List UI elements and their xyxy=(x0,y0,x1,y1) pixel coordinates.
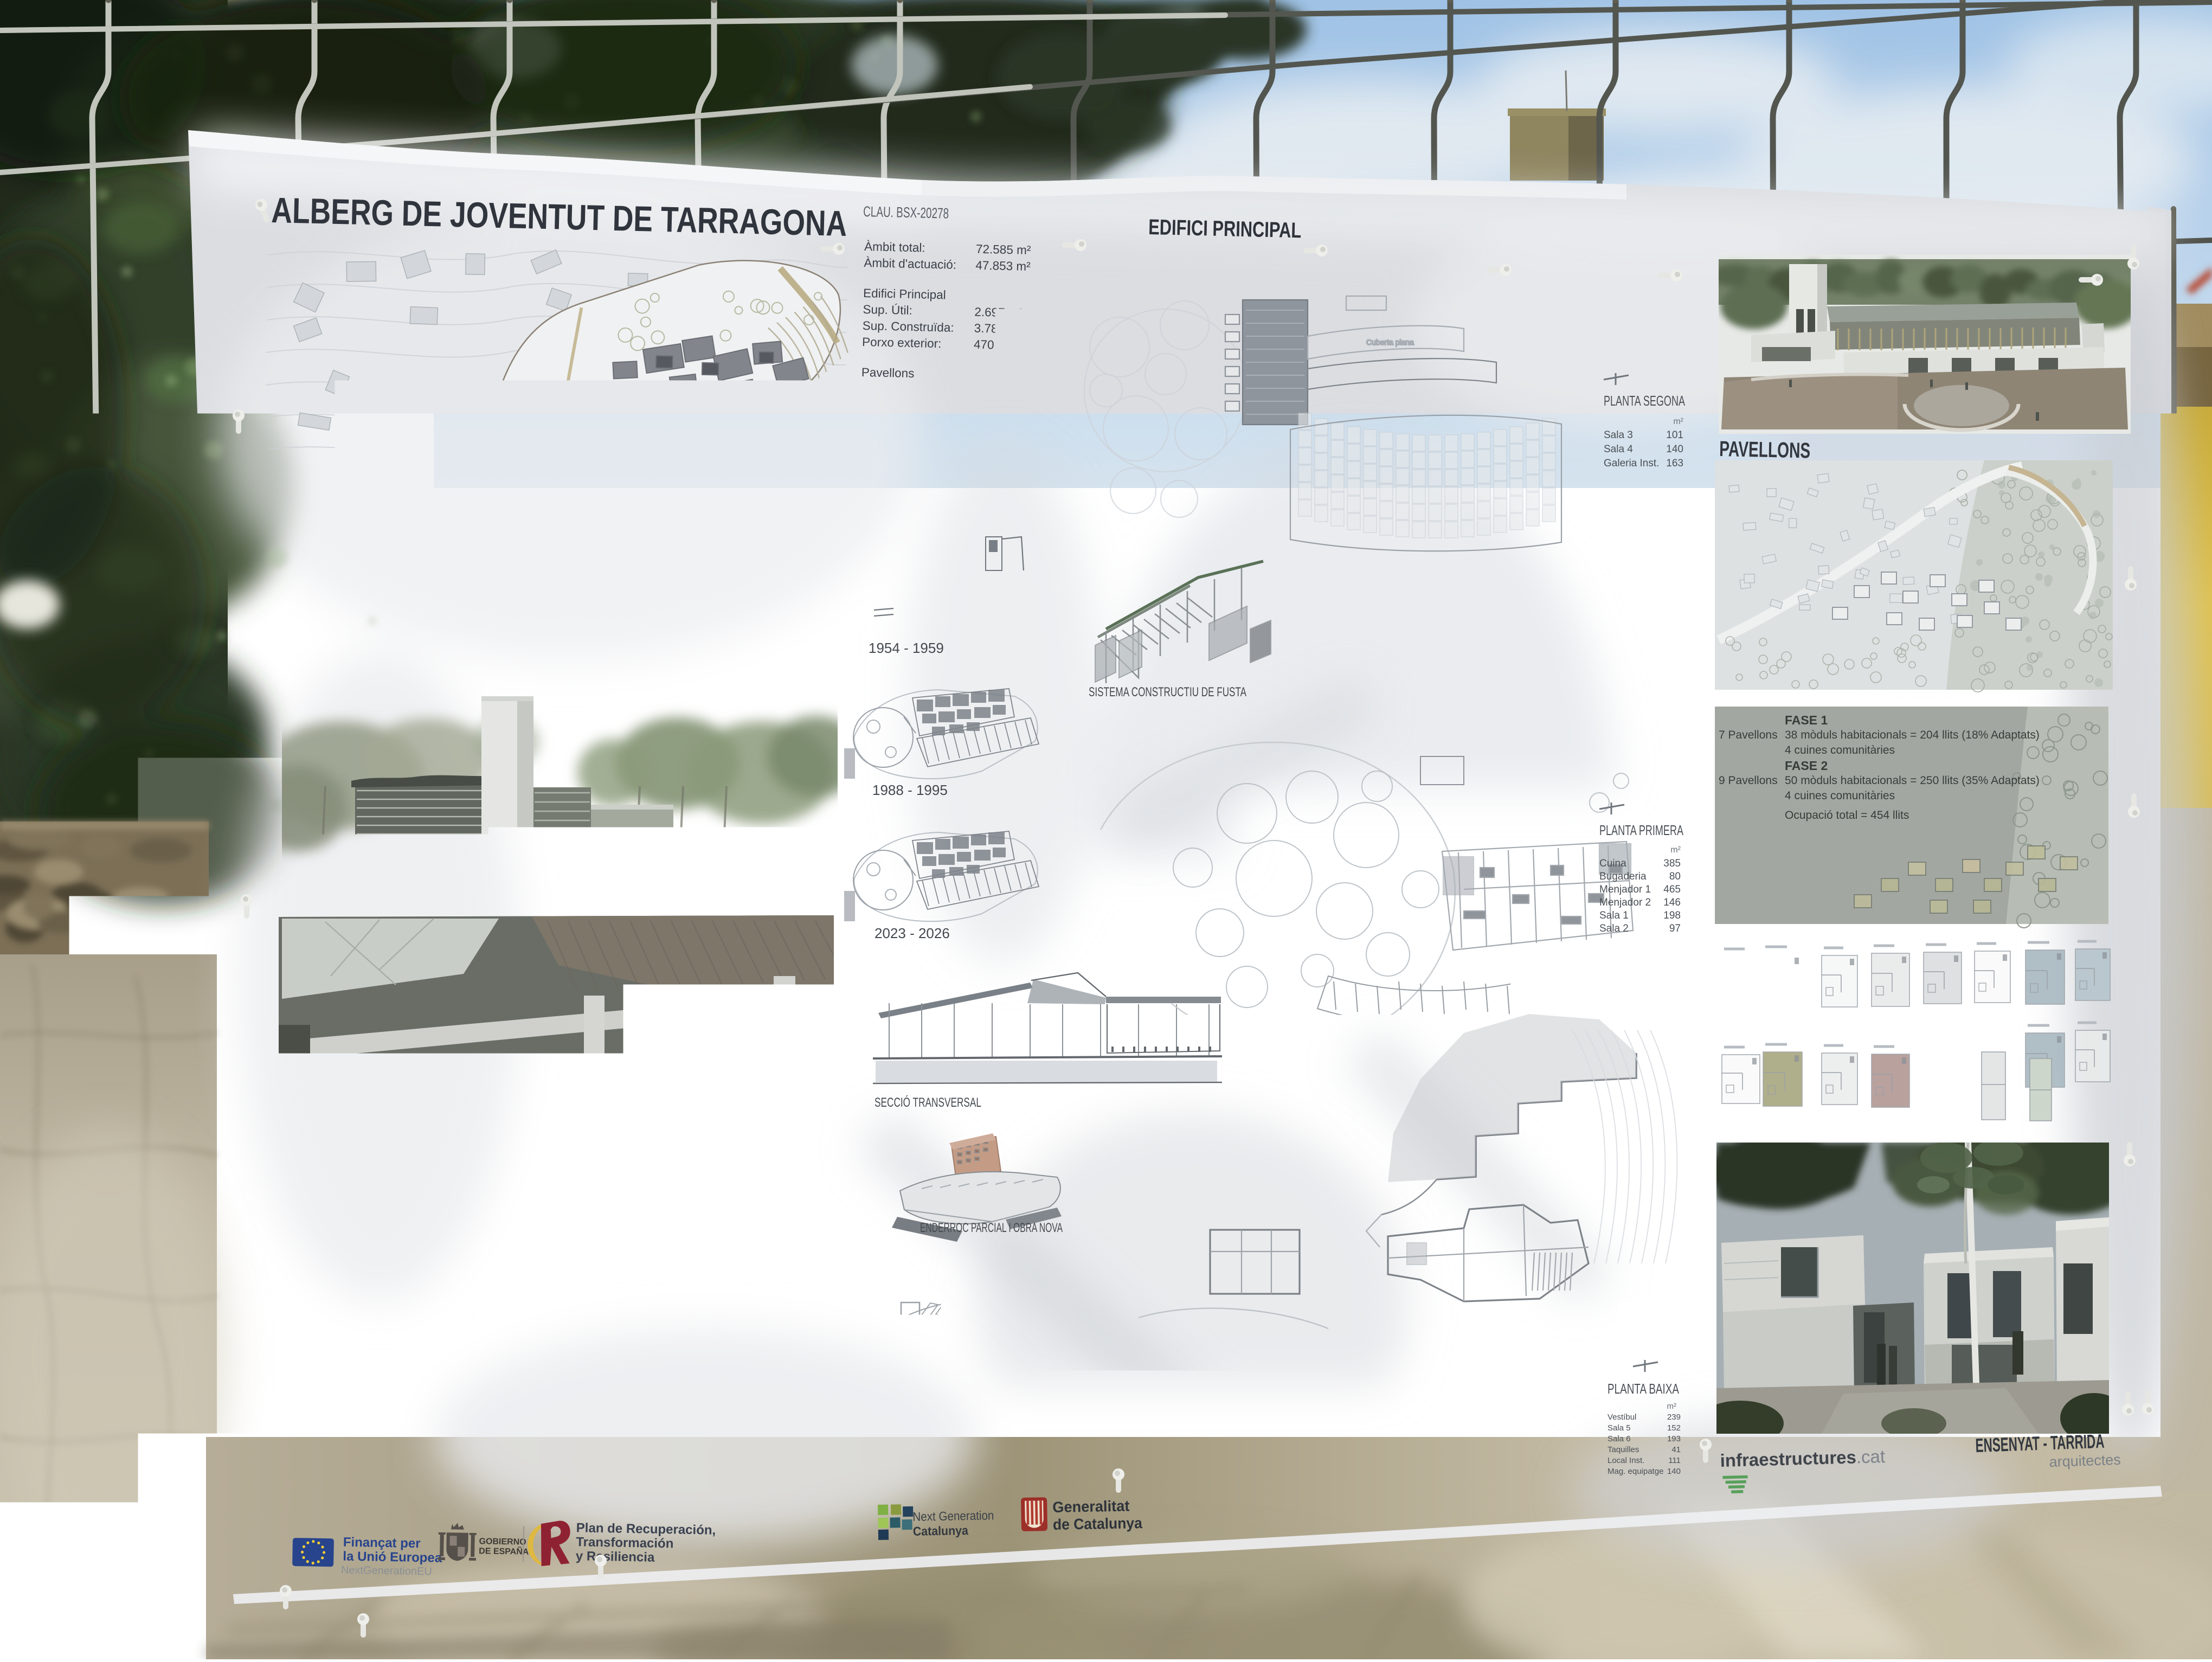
svg-text:Mag. equipatge: Mag. equipatge xyxy=(1607,1467,1663,1476)
svg-text:SECCIÓ TRANSVERSAL: SECCIÓ TRANSVERSAL xyxy=(874,1095,981,1110)
svg-text:PLANTA BAIXA: PLANTA BAIXA xyxy=(1607,1381,1679,1397)
svg-text:2.393 m²: 2.393 m² xyxy=(972,401,1021,415)
svg-text:Sala 6: Sala 6 xyxy=(1607,1434,1631,1443)
svg-text:101: 101 xyxy=(1666,429,1683,441)
svg-text:PROPOSTA FINAL EDIFICI DE SERV: PROPOSTA FINAL EDIFICI DE SERVEIS xyxy=(878,1465,1057,1479)
svg-text:4 cuines comunitàries: 4 cuines comunitàries xyxy=(1785,744,1895,756)
svg-text:ENDERROC PARCIAL I OBRA NOVA: ENDERROC PARCIAL I OBRA NOVA xyxy=(920,1221,1063,1235)
svg-text:Sala 1: Sala 1 xyxy=(1599,910,1629,921)
svg-text:2.697 m²: 2.697 m² xyxy=(974,305,1023,320)
svg-text:la Unió Europea: la Unió Europea xyxy=(343,1549,442,1565)
svg-text:Àmbit d'actuació:: Àmbit d'actuació: xyxy=(864,256,956,272)
svg-text:Edifici Principal: Edifici Principal xyxy=(863,286,946,301)
svg-text:Taquilles: Taquilles xyxy=(1607,1445,1639,1454)
svg-text:Sala 5: Sala 5 xyxy=(1607,1423,1631,1433)
svg-text:Local Inst.: Local Inst. xyxy=(1607,1456,1644,1465)
svg-text:Finançat per: Finançat per xyxy=(343,1535,421,1551)
svg-text:163: 163 xyxy=(1666,458,1683,469)
svg-text:80: 80 xyxy=(1669,871,1681,882)
svg-text:9 Pavellons: 9 Pavellons xyxy=(1719,774,1778,787)
svg-text:50 mòduls habitacionals = 250: 50 mòduls habitacionals = 250 llits (35%… xyxy=(1785,774,2040,787)
svg-text:Porxo exterior:: Porxo exterior: xyxy=(862,335,942,350)
svg-text:470 m²: 470 m² xyxy=(974,338,1012,352)
svg-text:97: 97 xyxy=(1669,923,1681,934)
svg-text:Cuina: Cuina xyxy=(1599,858,1626,869)
svg-text:4 cuines comunitàries: 4 cuines comunitàries xyxy=(1785,790,1895,802)
svg-text:44x32 m: 44x32 m xyxy=(971,464,1018,478)
svg-text:Galeria Inst.: Galeria Inst. xyxy=(1604,458,1659,469)
svg-text:PLANTA SEGONA: PLANTA SEGONA xyxy=(1604,393,1685,409)
svg-text:1954 - 1959: 1954 - 1959 xyxy=(869,640,944,656)
svg-text:arquitectes: arquitectes xyxy=(2049,1452,2121,1471)
svg-text:193: 193 xyxy=(1667,1434,1681,1443)
svg-text:Catalunya: Catalunya xyxy=(913,1523,969,1538)
svg-text:Àmbit total:: Àmbit total: xyxy=(864,240,925,255)
svg-text:EDIFICI PRINCIPAL: EDIFICI PRINCIPAL xyxy=(1148,215,1302,242)
svg-text:146: 146 xyxy=(1663,897,1681,908)
svg-text:38 mòduls habitacionals = 204: 38 mòduls habitacionals = 204 llits (18%… xyxy=(1785,729,2040,741)
svg-text:m²: m² xyxy=(1667,1402,1677,1411)
svg-text:Sala 3: Sala 3 xyxy=(1604,429,1633,441)
svg-text:m²: m² xyxy=(1670,845,1681,855)
svg-text:140: 140 xyxy=(1667,1467,1681,1476)
svg-text:CLAU. BSX-20278: CLAU. BSX-20278 xyxy=(863,203,949,222)
svg-text:Sup. Construïda:: Sup. Construïda: xyxy=(863,319,954,335)
svg-text:SISTEMA CONSTRUCTIU DE FUSTA: SISTEMA CONSTRUCTIU DE FUSTA xyxy=(1089,685,1246,700)
svg-text:Sup. Útil:: Sup. Útil: xyxy=(861,382,911,396)
svg-text:1.834 m²: 1.834 m² xyxy=(973,384,1021,399)
svg-text:Bugaderia: Bugaderia xyxy=(1599,871,1647,882)
svg-text:152: 152 xyxy=(1667,1423,1681,1433)
svg-text:7 Pavellons: 7 Pavellons xyxy=(1719,729,1778,741)
svg-text:de Catalunya: de Catalunya xyxy=(1053,1515,1143,1533)
svg-text:y Resiliencia: y Resiliencia xyxy=(576,1549,655,1565)
svg-text:PLANTA PRIMERA: PLANTA PRIMERA xyxy=(1599,822,1683,838)
svg-text:2023 - 2026: 2023 - 2026 xyxy=(874,925,950,941)
svg-text:Pistes esportives: Pistes esportives xyxy=(859,461,952,477)
svg-text:41: 41 xyxy=(1671,1445,1681,1454)
svg-text:239: 239 xyxy=(1667,1413,1681,1422)
svg-text:14.200 m²: 14.200 m² xyxy=(972,431,1027,446)
svg-text:FASE 2: FASE 2 xyxy=(1785,759,1828,773)
svg-text:Vestíbul: Vestíbul xyxy=(1607,1413,1636,1422)
svg-text:NextGenerationEU: NextGenerationEU xyxy=(341,1564,432,1578)
svg-text:Jocs infantils:: Jocs infantils: xyxy=(859,445,933,460)
svg-text:PAVELLONS: PAVELLONS xyxy=(1719,437,1811,463)
svg-text:REHABILITACIÓ DE L’ESTRUCTURA: REHABILITACIÓ DE L’ESTRUCTURA ORIGINAL xyxy=(923,1351,1093,1365)
svg-text:Generalitat: Generalitat xyxy=(1052,1498,1130,1516)
svg-text:4.600 m²: 4.600 m² xyxy=(971,447,1020,462)
svg-text:Menjador 1: Menjador 1 xyxy=(1599,884,1651,895)
svg-text:FASE 1: FASE 1 xyxy=(1785,713,1828,727)
svg-text:Sup. Útil:: Sup. Útil: xyxy=(863,303,912,317)
svg-text:385: 385 xyxy=(1663,858,1681,869)
svg-text:Next Generation: Next Generation xyxy=(912,1508,994,1524)
svg-text:Cuberta plana: Cuberta plana xyxy=(1366,338,1414,346)
svg-text:465: 465 xyxy=(1663,884,1681,895)
svg-text:60 places: 60 places xyxy=(970,510,1023,525)
svg-text:m²: m² xyxy=(1673,417,1683,426)
svg-text:3.781 m²: 3.781 m² xyxy=(974,322,1023,336)
svg-text:Sup. Construïda:: Sup. Construïda: xyxy=(860,398,952,414)
svg-text:Sala 4: Sala 4 xyxy=(1604,444,1633,455)
svg-text:47.853 m²: 47.853 m² xyxy=(975,259,1031,273)
svg-text:140: 140 xyxy=(1666,444,1683,455)
svg-text:Ocupació total = 454 llits: Ocupació total = 454 llits xyxy=(1785,809,1909,822)
svg-text:Sala 2: Sala 2 xyxy=(1599,923,1629,934)
svg-text:GOBIERNO: GOBIERNO xyxy=(479,1537,526,1547)
svg-text:Menjador 2: Menjador 2 xyxy=(1599,897,1651,908)
svg-text:Aparcament: Aparcament xyxy=(858,491,925,506)
svg-text:Pavellons: Pavellons xyxy=(861,365,915,380)
svg-text:Autocars: Autocars xyxy=(858,524,906,538)
svg-text:1988 - 1995: 1988 - 1995 xyxy=(872,782,948,798)
svg-text:Vehicles privats: Vehicles privats xyxy=(858,508,943,523)
svg-text:111: 111 xyxy=(1668,1456,1681,1465)
svg-text:72.585 m²: 72.585 m² xyxy=(976,242,1031,257)
svg-text:198: 198 xyxy=(1663,910,1681,921)
svg-text:Zones verdes:: Zones verdes: xyxy=(860,428,937,444)
